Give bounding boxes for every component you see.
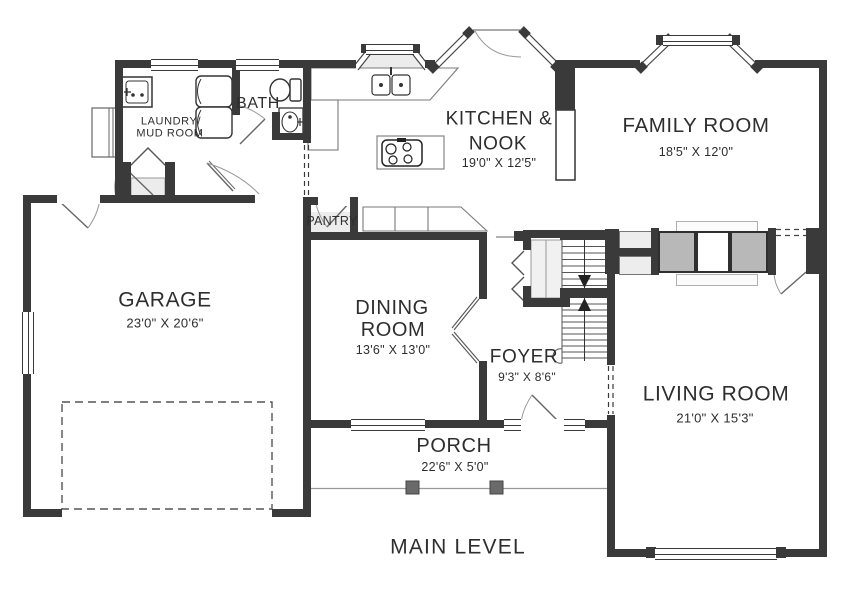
family-bay-window <box>663 35 733 46</box>
sidelite-window <box>504 419 521 431</box>
dims-living-room: 21'0" X 15'3" <box>676 412 753 425</box>
dims-family-room: 18'5" X 12'0" <box>659 146 734 159</box>
sidelite-window <box>564 419 585 431</box>
plan-title: MAIN LEVEL <box>390 537 526 558</box>
dims-garage: 23'0" X 20'6" <box>126 317 203 330</box>
dining-french-doors <box>452 297 479 363</box>
closet-wall <box>523 286 531 298</box>
wall-segment <box>806 228 819 274</box>
wall-segment <box>115 60 311 68</box>
label-porch: PORCH <box>416 436 491 456</box>
front-door-opening <box>521 419 564 429</box>
stair-arrow-down <box>578 275 591 288</box>
window <box>236 59 279 71</box>
closet-wall <box>123 162 131 197</box>
fireplace-side <box>658 231 696 273</box>
cooktop <box>382 138 422 166</box>
chimney-wall <box>555 60 575 110</box>
living-window <box>655 548 777 560</box>
label-living-room: LIVING ROOM <box>643 384 790 405</box>
wall-segment <box>272 133 303 140</box>
wall-segment <box>303 197 311 517</box>
door-opening <box>57 194 100 204</box>
wall-segment <box>23 509 62 517</box>
wall-segment <box>479 361 487 420</box>
wall-segment <box>479 237 487 299</box>
wall-segment <box>605 229 619 274</box>
window-cap <box>776 547 786 558</box>
window-cap <box>413 44 420 53</box>
nook-prow <box>430 29 560 71</box>
laundry-sink <box>122 77 152 107</box>
label-kitchen-line1: KITCHEN & <box>446 110 553 129</box>
kitchen-bay-window <box>366 44 414 55</box>
label-bath: BATH <box>236 96 280 112</box>
window <box>151 59 198 71</box>
wall-post <box>514 231 524 241</box>
hearth <box>676 274 758 286</box>
label-kitchen-line2: NOOK <box>469 135 527 154</box>
label-foyer: FOYER <box>490 348 558 367</box>
wall-segment <box>585 420 612 428</box>
stairs-closet-bifold <box>512 251 524 275</box>
closet-wall <box>523 238 531 250</box>
fireplace-firebox <box>696 231 730 273</box>
wall-segment <box>425 420 504 428</box>
porch-edge <box>311 481 607 494</box>
window-cap <box>732 35 740 45</box>
label-garage: GARAGE <box>118 290 211 311</box>
wall-segment <box>115 60 123 201</box>
label-laundry-line1: LAUNDRY/ <box>141 117 201 128</box>
wall-segment <box>755 60 827 68</box>
label-pantry: PANTRY <box>306 215 357 228</box>
living-room-door <box>774 272 806 294</box>
stairs-closet <box>531 240 562 298</box>
wall-segment <box>303 60 311 143</box>
garage-window <box>22 312 34 374</box>
chimney-chase <box>556 110 575 180</box>
porch-post <box>490 481 503 494</box>
closet-wall <box>165 162 175 197</box>
wall-segment <box>607 415 615 557</box>
dims-foyer: 9'3" X 8'6" <box>498 371 556 383</box>
wall-segment <box>303 197 318 205</box>
wall-segment <box>303 60 356 68</box>
porch-post <box>406 481 419 494</box>
wall-segment <box>819 60 827 557</box>
door-opening <box>255 194 303 204</box>
wall-segment <box>303 420 351 428</box>
fireplace-cap <box>768 228 776 275</box>
label-family-room: FAMILY ROOM <box>622 116 769 137</box>
wall-segment <box>303 232 487 240</box>
stair-landing-wall <box>560 288 612 298</box>
dims-kitchen: 19'0" X 12'5" <box>462 157 537 170</box>
wall-segment <box>425 60 435 68</box>
pantry-door-opening <box>318 196 350 206</box>
dining-window <box>351 419 425 431</box>
label-dining-line1: DINING <box>355 298 429 318</box>
floor-plan: LAUNDRY/ MUD ROOM BATH KITCHEN & NOOK 19… <box>0 0 842 595</box>
mudroom-closet-bifold <box>127 148 169 169</box>
dims-dining: 13'6" X 13'0" <box>356 344 431 357</box>
label-laundry-line2: MUD ROOM <box>136 129 203 140</box>
closet-wall <box>523 298 570 307</box>
label-dining-line2: ROOM <box>361 320 426 340</box>
dims-porch: 22'6" X 5'0" <box>421 461 488 474</box>
fireplace-side <box>730 231 768 273</box>
garage-door-dashed <box>62 402 272 509</box>
